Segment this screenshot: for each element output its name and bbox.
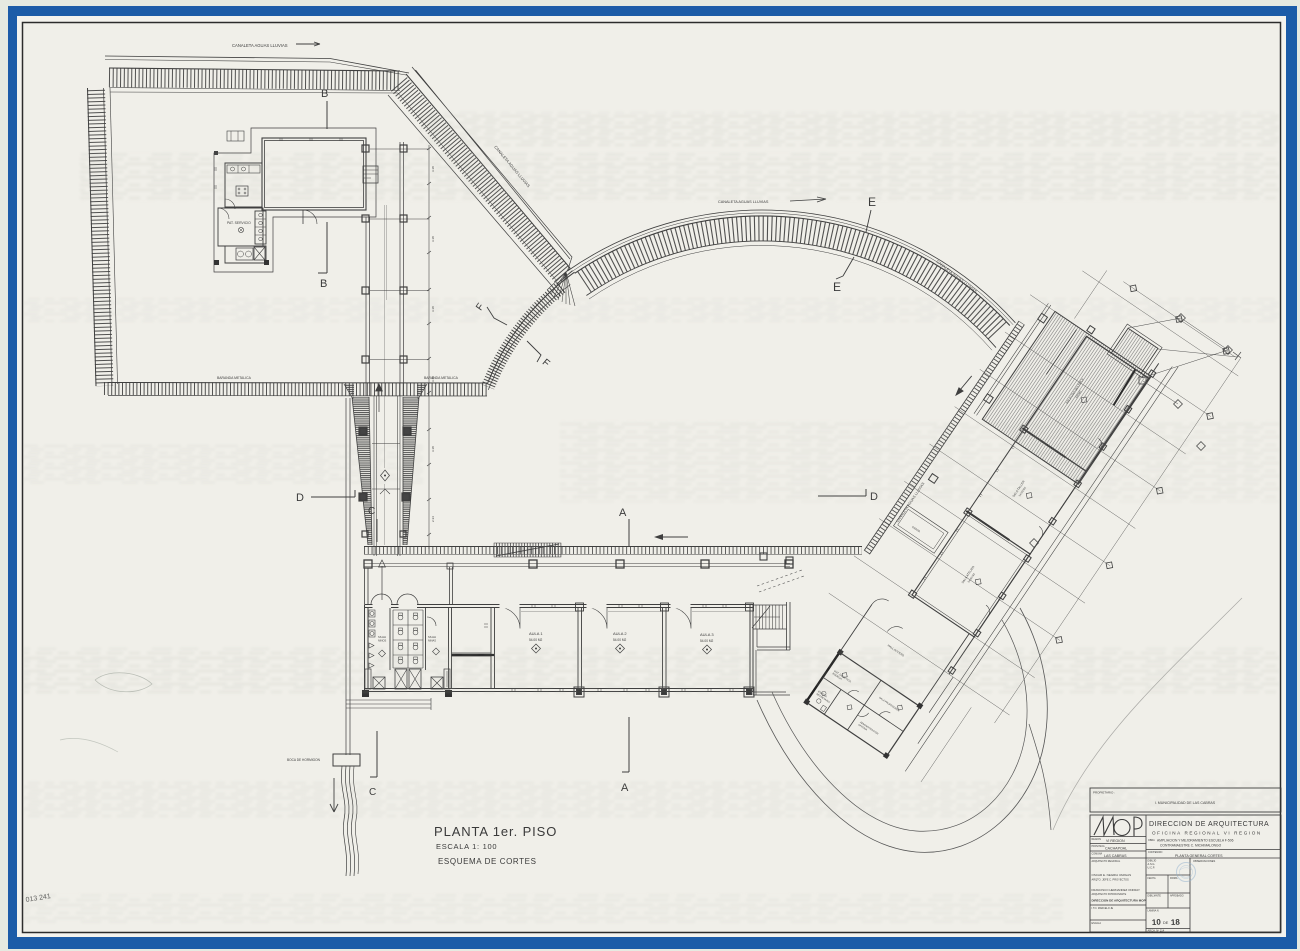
svg-text:BARANDA METALICA: BARANDA METALICA: [217, 376, 252, 380]
svg-text:OFICINA REGIONAL VI REGION: OFICINA REGIONAL VI REGION: [1152, 831, 1262, 836]
svg-text:B: B: [320, 278, 327, 290]
svg-text:D: D: [296, 492, 304, 504]
svg-text:3.18: 3.18: [431, 446, 435, 452]
svg-text:OSCAR E. NEGRIA VARGAS: OSCAR E. NEGRIA VARGAS: [1092, 873, 1132, 877]
svg-text:PLANTA GENERAL CORTES: PLANTA GENERAL CORTES: [1175, 854, 1223, 858]
svg-text:FIRMA: FIRMA: [1170, 877, 1178, 880]
svg-text:AMPLIACION Y MEJORAMIENTO ESCU: AMPLIACION Y MEJORAMIENTO ESCUELA F-506: [1157, 839, 1234, 843]
svg-text:ARQUITECTO REGIONAL: ARQUITECTO REGIONAL: [1092, 860, 1121, 863]
svg-text:10: 10: [1152, 918, 1162, 927]
svg-text:54.00 M2: 54.00 M2: [613, 638, 627, 642]
svg-text:A.S.G.: A.S.G.: [1148, 862, 1156, 866]
svg-text:AULA 2: AULA 2: [613, 631, 627, 636]
svg-text:LAS CABRAS: LAS CABRAS: [1104, 854, 1127, 858]
svg-text:COMUNA: COMUNA: [1092, 853, 1103, 856]
svg-text:VI REGION: VI REGION: [1106, 839, 1125, 843]
svg-text:3.18: 3.18: [431, 236, 435, 242]
svg-text:PAT. SERVICIO: PAT. SERVICIO: [227, 221, 251, 225]
svg-text:3.18: 3.18: [431, 376, 435, 382]
svg-text:REGION: REGION: [1092, 838, 1102, 841]
svg-text:ARCH. Nº 214: ARCH. Nº 214: [1148, 929, 1165, 933]
svg-text:2.34: 2.34: [431, 516, 435, 522]
svg-text:B: B: [321, 88, 328, 100]
svg-text:DIBUJANTE: DIBUJANTE: [1148, 895, 1162, 898]
svg-text:U.C.P.: U.C.P.: [1148, 866, 1156, 870]
svg-text:AULA 1: AULA 1: [529, 631, 543, 636]
svg-text:LAMINA N: LAMINA N: [1148, 910, 1159, 913]
svg-text:ARQUITECTO PATROCINANTE: ARQUITECTO PATROCINANTE: [1092, 893, 1127, 896]
svg-text:ARQTO. JEFE C. PROYECTOS: ARQTO. JEFE C. PROYECTOS: [1092, 878, 1130, 882]
svg-text:ESCALA: ESCALA: [1092, 922, 1102, 925]
svg-text:A: A: [619, 507, 627, 519]
svg-text:54.00 M2: 54.00 M2: [700, 639, 714, 643]
svg-text:DIRECCION DE ARQUITECTURA: DIRECCION DE ARQUITECTURA: [1149, 821, 1269, 828]
svg-text:ESCALA 1: 100: ESCALA 1: 100: [436, 842, 497, 851]
svg-text:PROVINCIA: PROVINCIA: [1092, 845, 1106, 848]
svg-text:OBSERVACIONES: OBSERVACIONES: [1193, 859, 1216, 863]
svg-text:NINOS: NINOS: [378, 639, 386, 643]
svg-text:SS.HH: SS.HH: [428, 635, 436, 639]
svg-text:CONTENIDO: CONTENIDO: [1148, 851, 1162, 854]
svg-text:SS.HH: SS.HH: [378, 635, 386, 639]
svg-text:PLANTA 1er. PISO: PLANTA 1er. PISO: [434, 824, 557, 839]
svg-text:DIRECCION DE ARQUITECTURA MOP: DIRECCION DE ARQUITECTURA MOP: [1092, 899, 1146, 903]
svg-text:CACHAPOAL: CACHAPOAL: [1105, 847, 1127, 851]
svg-text:18: 18: [1171, 918, 1181, 927]
svg-text:C: C: [368, 506, 375, 517]
svg-text:NINAS: NINAS: [428, 639, 436, 643]
svg-text:E: E: [833, 280, 841, 294]
svg-text:CONTRAMAESTRE C. MICHIMALONGO: CONTRAMAESTRE C. MICHIMALONGO: [1160, 844, 1222, 848]
svg-text:FRANCISCO HERNANDEZ ONFRAY: FRANCISCO HERNANDEZ ONFRAY: [1092, 888, 1141, 892]
svg-text:ESQUEMA DE CORTES: ESQUEMA DE CORTES: [438, 857, 537, 866]
svg-text:APROBADO: APROBADO: [1170, 895, 1184, 898]
svg-text:54.00 M2: 54.00 M2: [529, 638, 543, 642]
svg-text:AULA 3: AULA 3: [700, 632, 714, 637]
svg-text:BOCA DE HORMIGON: BOCA DE HORMIGON: [287, 758, 321, 762]
svg-text:OBRA: OBRA: [1148, 839, 1155, 842]
svg-text:DE: DE: [1163, 921, 1169, 925]
svg-text:FECHA: FECHA: [1148, 877, 1157, 880]
svg-text:I.T.O. MARCELO JE: I.T.O. MARCELO JE: [1092, 907, 1114, 910]
svg-text:CANALETA AGUAS LLUVIAS: CANALETA AGUAS LLUVIAS: [232, 43, 288, 48]
